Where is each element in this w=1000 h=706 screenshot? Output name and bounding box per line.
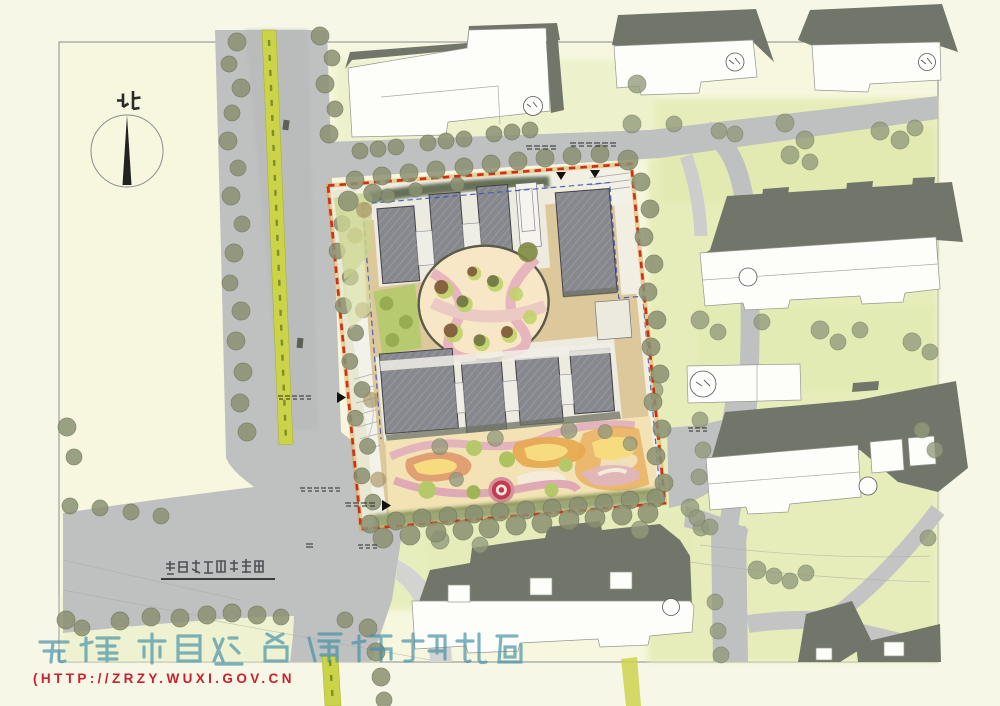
svg-text:(HTTP://ZRZY.WUXI.GOV.CN: (HTTP://ZRZY.WUXI.GOV.CN [33, 671, 295, 686]
